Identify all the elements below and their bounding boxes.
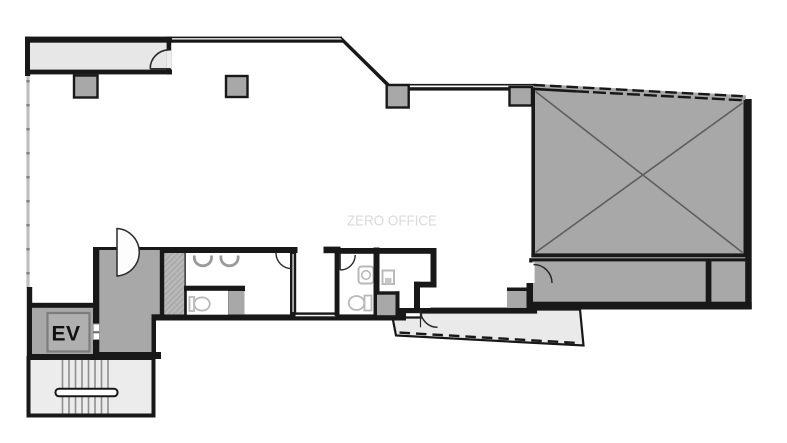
svg-text:EV: EV	[51, 323, 80, 346]
svg-text:ZERO OFFICE: ZERO OFFICE	[347, 213, 437, 230]
